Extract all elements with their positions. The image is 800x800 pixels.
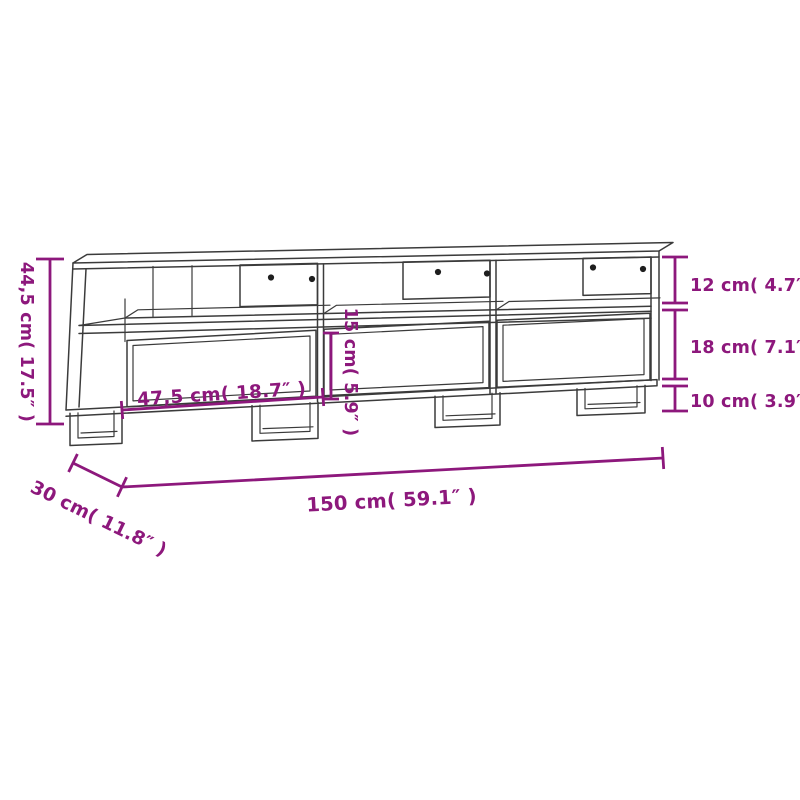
back-panel-2 — [403, 260, 490, 299]
top-compartment-dimension-label: 12 cm( 4.7″ ) — [690, 276, 800, 296]
diagram-canvas: 44,5 cm( 17.5″ ) 12 cm( 4.7″ ) 18 cm( 7.… — [0, 0, 800, 800]
section-divider-1 — [318, 264, 324, 402]
back-panel-1 — [240, 263, 318, 306]
cable-hole-dot — [640, 266, 646, 272]
height-dimension: 44,5 cm( 17.5″ ) — [16, 259, 64, 424]
drawer-height-dimension-label: 18 cm( 7.1″ ) — [690, 338, 800, 358]
drawer-front-3-inner — [503, 319, 644, 382]
top-compartment-dimension-line — [662, 257, 688, 303]
back-panel-3 — [583, 257, 651, 295]
cable-hole-dot — [268, 274, 274, 280]
cable-hole-dot — [435, 269, 441, 275]
shelf-lip — [79, 311, 651, 325]
cabinet-top-lip — [73, 257, 659, 269]
leg-height-dimension: 10 cm( 3.9″ ) — [662, 386, 800, 412]
product-dimension-diagram: 44,5 cm( 17.5″ ) 12 cm( 4.7″ ) 18 cm( 7.… — [0, 0, 800, 800]
depth-dimension: 30 cm( 11.8″ ) — [27, 454, 170, 561]
leg-1 — [70, 411, 122, 446]
width-dimension: 150 cm( 59.1″ ) — [122, 447, 664, 517]
width-dimension-label: 150 cm( 59.1″ ) — [306, 484, 478, 516]
leg-2 — [252, 402, 318, 441]
cabinet-drawing — [66, 243, 673, 446]
shelf-rail — [79, 318, 651, 333]
leg-3 — [435, 393, 500, 428]
cable-hole-dot — [484, 270, 490, 276]
leg-height-dimension-label: 10 cm( 3.9″ ) — [690, 392, 800, 412]
cabinet-left-edge — [66, 263, 73, 410]
drawer-width-dimension: 47,5 cm( 18.7″ ) — [121, 379, 323, 419]
drawer-height-dimension-line — [662, 310, 688, 379]
depth-dimension-line — [69, 454, 127, 497]
height-dimension-label: 44,5 cm( 17.5″ ) — [16, 262, 36, 422]
cable-hole-dot — [309, 276, 315, 282]
leg-height-dimension-line — [662, 386, 688, 411]
section-divider-2 — [490, 260, 496, 393]
cabinet-left-inner-edge — [79, 269, 86, 407]
drawer-height-dimension: 18 cm( 7.1″ ) — [662, 310, 800, 379]
dimension-annotations: 44,5 cm( 17.5″ ) 12 cm( 4.7″ ) 18 cm( 7.… — [16, 257, 800, 561]
height-dimension-line — [36, 259, 64, 424]
cable-hole-dot — [590, 264, 596, 270]
top-compartment-dimension: 12 cm( 4.7″ ) — [662, 257, 800, 303]
inner-height-dimension-label: 15 cm( 5.9″ ) — [340, 308, 360, 437]
width-dimension-line — [122, 447, 664, 487]
depth-dimension-label: 30 cm( 11.8″ ) — [27, 477, 170, 561]
